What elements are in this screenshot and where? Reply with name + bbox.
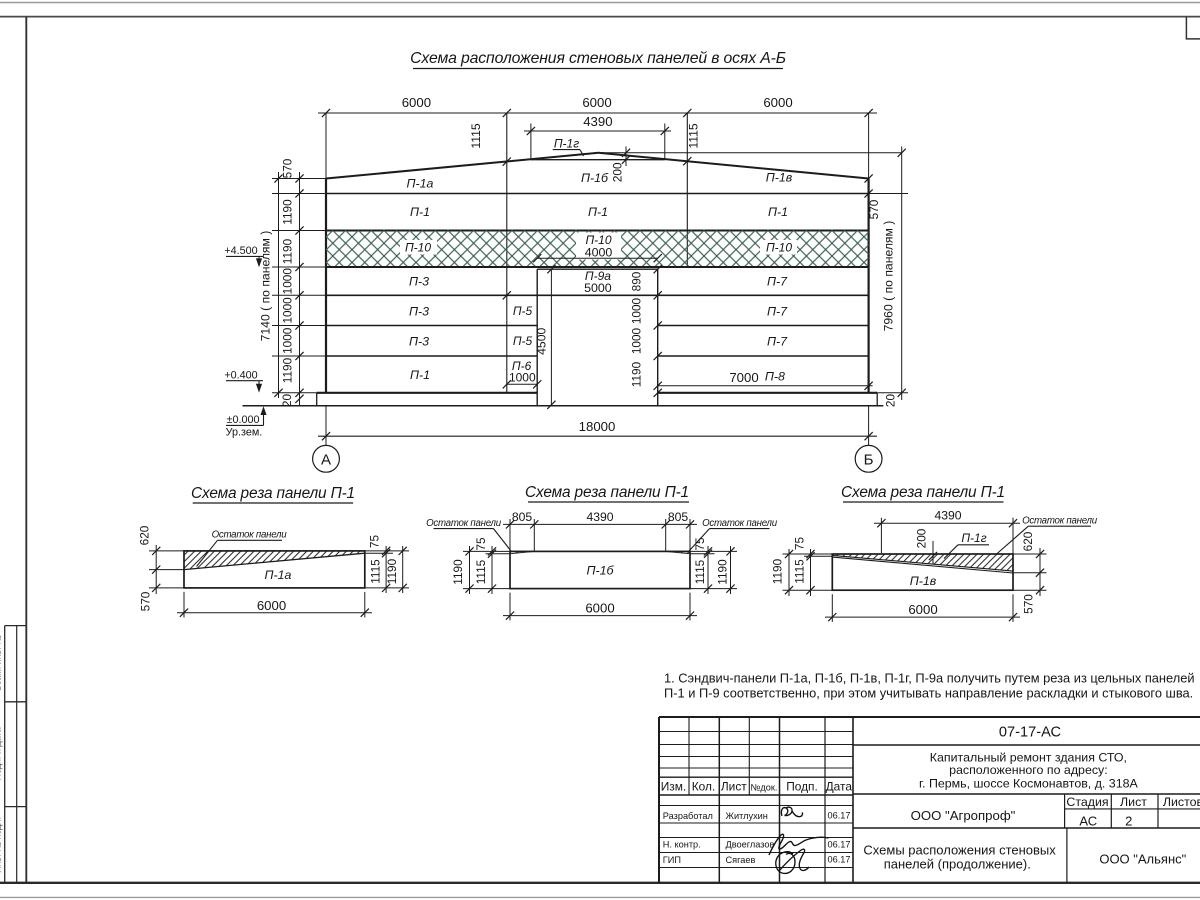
svg-text:1000: 1000 (281, 327, 295, 354)
svg-text:20: 20 (280, 394, 294, 408)
svg-text:4390: 4390 (934, 509, 961, 523)
svg-text:ООО "Агропроф": ООО "Агропроф" (911, 808, 1016, 823)
svg-text:Схема реза панели П-1: Схема реза панели П-1 (191, 485, 355, 502)
svg-text:П-3: П-3 (409, 335, 429, 349)
svg-text:панелей (продолжение).: панелей (продолжение). (884, 856, 1031, 871)
svg-text:Схема реза панели П-1: Схема реза панели П-1 (841, 484, 1005, 501)
svg-text:П-1в: П-1в (766, 171, 793, 185)
svg-text:расположенного по адресу:: расположенного по адресу: (949, 763, 1108, 777)
svg-text:75: 75 (474, 537, 488, 551)
svg-text:+4.500: +4.500 (224, 245, 257, 257)
svg-text:П-1: П-1 (410, 205, 430, 219)
svg-text:805: 805 (668, 510, 689, 524)
svg-text:Остаток панели: Остаток панели (1022, 516, 1098, 527)
svg-text:75: 75 (368, 535, 382, 549)
svg-text:Сягаев: Сягаев (726, 855, 756, 865)
svg-text:П-1: П-1 (768, 205, 788, 219)
svg-text:1190: 1190 (281, 357, 295, 383)
svg-text:+0.400: +0.400 (224, 369, 257, 381)
svg-text:1190: 1190 (281, 199, 295, 225)
svg-text:П-1: П-1 (588, 205, 608, 219)
svg-text:П-1: П-1 (410, 368, 430, 382)
svg-text:6000: 6000 (908, 602, 937, 617)
svg-text:П-1а: П-1а (407, 177, 434, 191)
svg-text:20: 20 (884, 394, 898, 408)
svg-text:1000: 1000 (509, 371, 536, 385)
svg-text:1190: 1190 (771, 558, 785, 584)
svg-text:1000: 1000 (281, 268, 295, 295)
svg-text:1190: 1190 (281, 238, 295, 264)
svg-text:г. Пермь, шоссе Космонавтов, д: г. Пермь, шоссе Космонавтов, д. 318А (919, 776, 1138, 790)
svg-text:75: 75 (793, 537, 807, 551)
svg-text:570: 570 (281, 158, 295, 178)
svg-text:07-17-АС: 07-17-АС (999, 725, 1061, 741)
svg-text:П-8: П-8 (765, 370, 785, 384)
svg-text:75: 75 (693, 537, 707, 551)
svg-text:1115: 1115 (793, 559, 807, 584)
svg-text:П-7: П-7 (767, 275, 788, 289)
svg-text:П-10: П-10 (405, 241, 431, 255)
svg-text:1190: 1190 (451, 559, 465, 585)
svg-text:1190: 1190 (385, 558, 399, 584)
svg-text:1115: 1115 (693, 559, 707, 584)
svg-text:1000: 1000 (281, 297, 295, 324)
svg-text:П-1а: П-1а (265, 568, 292, 582)
svg-text:Кол.: Кол. (692, 780, 716, 794)
svg-text:4000: 4000 (585, 246, 613, 260)
svg-text:5000: 5000 (584, 281, 612, 295)
svg-text:А: А (321, 451, 331, 468)
svg-text:П-3: П-3 (409, 275, 429, 289)
svg-text:4390: 4390 (583, 114, 612, 129)
svg-text:1. Сэндвич-панели П-1а, П-1б,: 1. Сэндвич-панели П-1а, П-1б, П-1в, П-1г… (664, 671, 1195, 686)
svg-text:Изм.: Изм. (661, 780, 686, 794)
svg-text:620: 620 (138, 525, 152, 545)
svg-text:П-7: П-7 (767, 335, 788, 349)
svg-text:1115: 1115 (687, 123, 701, 149)
svg-text:1115: 1115 (469, 123, 483, 149)
svg-text:Остаток панели: Остаток панели (702, 518, 778, 529)
svg-text:6000: 6000 (585, 601, 614, 616)
svg-text:06.17: 06.17 (828, 811, 851, 821)
svg-text:Лист: Лист (1120, 795, 1147, 809)
svg-text:06.17: 06.17 (828, 840, 851, 850)
svg-text:Взам. инв. №: Взам. инв. № (0, 635, 3, 691)
svg-text:4500: 4500 (534, 328, 548, 355)
svg-text:1115: 1115 (369, 559, 383, 584)
svg-text:Подп.: Подп. (786, 780, 818, 794)
svg-text:ГИП: ГИП (663, 855, 681, 865)
svg-text:570: 570 (1021, 594, 1035, 614)
svg-text:6000: 6000 (582, 95, 611, 110)
svg-text:2: 2 (1125, 813, 1132, 828)
svg-text:П-10: П-10 (766, 241, 792, 255)
svg-text:П-1б: П-1б (587, 564, 615, 578)
svg-text:Н. контр.: Н. контр. (663, 840, 701, 850)
svg-text:Остаток панели: Остаток панели (212, 530, 288, 541)
svg-text:570: 570 (139, 591, 153, 611)
svg-text:7960 ( по панелям ): 7960 ( по панелям ) (882, 221, 896, 332)
svg-text:Листов: Листов (1163, 795, 1200, 809)
svg-text:П-5: П-5 (513, 304, 533, 318)
svg-text:1000: 1000 (630, 327, 644, 354)
svg-text:6000: 6000 (257, 598, 286, 613)
svg-text:Лист: Лист (721, 780, 747, 794)
svg-text:П-3: П-3 (409, 305, 429, 319)
svg-text:06.17: 06.17 (828, 855, 851, 865)
svg-text:Схемы расположения стеновых: Схемы расположения стеновых (863, 842, 1056, 857)
svg-text:1190: 1190 (715, 559, 729, 585)
svg-text:200: 200 (611, 162, 625, 182)
svg-text:620: 620 (1021, 531, 1035, 551)
svg-text:ООО "Альянс": ООО "Альянс" (1099, 852, 1186, 867)
svg-text:Ур.зем.: Ур.зем. (226, 427, 263, 439)
svg-text:7140 ( по панелям ): 7140 ( по панелям ) (259, 231, 273, 342)
svg-text:Инв. № подл.: Инв. № подл. (0, 817, 3, 873)
svg-text:П-1г: П-1г (961, 531, 986, 545)
svg-text:4390: 4390 (586, 510, 613, 524)
svg-text:П-5: П-5 (513, 334, 533, 348)
svg-text:П-1в: П-1в (910, 574, 937, 588)
svg-text:Схема реза панели П-1: Схема реза панели П-1 (525, 484, 689, 501)
svg-text:1000: 1000 (630, 297, 644, 324)
svg-text:1115: 1115 (474, 559, 488, 584)
svg-text:890: 890 (630, 271, 644, 291)
svg-text:Остаток панели: Остаток панели (426, 518, 502, 529)
svg-text:№док.: №док. (751, 783, 778, 793)
svg-text:Дата: Дата (826, 780, 853, 794)
svg-text:Стадия: Стадия (1066, 795, 1108, 809)
svg-text:АС: АС (1079, 813, 1097, 828)
svg-text:570: 570 (867, 199, 881, 219)
svg-text:7000: 7000 (729, 370, 758, 385)
svg-text:П-1г: П-1г (554, 137, 579, 151)
svg-text:П-1б: П-1б (581, 171, 609, 185)
svg-text:6000: 6000 (763, 95, 792, 110)
svg-text:Б: Б (864, 451, 874, 468)
svg-text:Разработал: Разработал (663, 811, 713, 821)
svg-text:1190: 1190 (630, 361, 644, 387)
svg-text:Подп. и дата: Подп. и дата (0, 727, 3, 780)
svg-text:18000: 18000 (579, 419, 616, 434)
svg-text:Схема расположения стеновых па: Схема расположения стеновых панелей в ос… (410, 50, 786, 67)
svg-text:П-1 и П-9 соответственно, при: П-1 и П-9 соответственно, при этом учиты… (664, 685, 1193, 700)
svg-text:Двоеглазов: Двоеглазов (726, 840, 775, 850)
svg-text:200: 200 (915, 528, 929, 548)
svg-text:П-7: П-7 (767, 305, 788, 319)
svg-text:Житлухин: Житлухин (726, 811, 768, 821)
svg-text:6000: 6000 (402, 95, 431, 110)
svg-text:805: 805 (512, 510, 533, 524)
svg-text:±0.000: ±0.000 (227, 414, 260, 426)
